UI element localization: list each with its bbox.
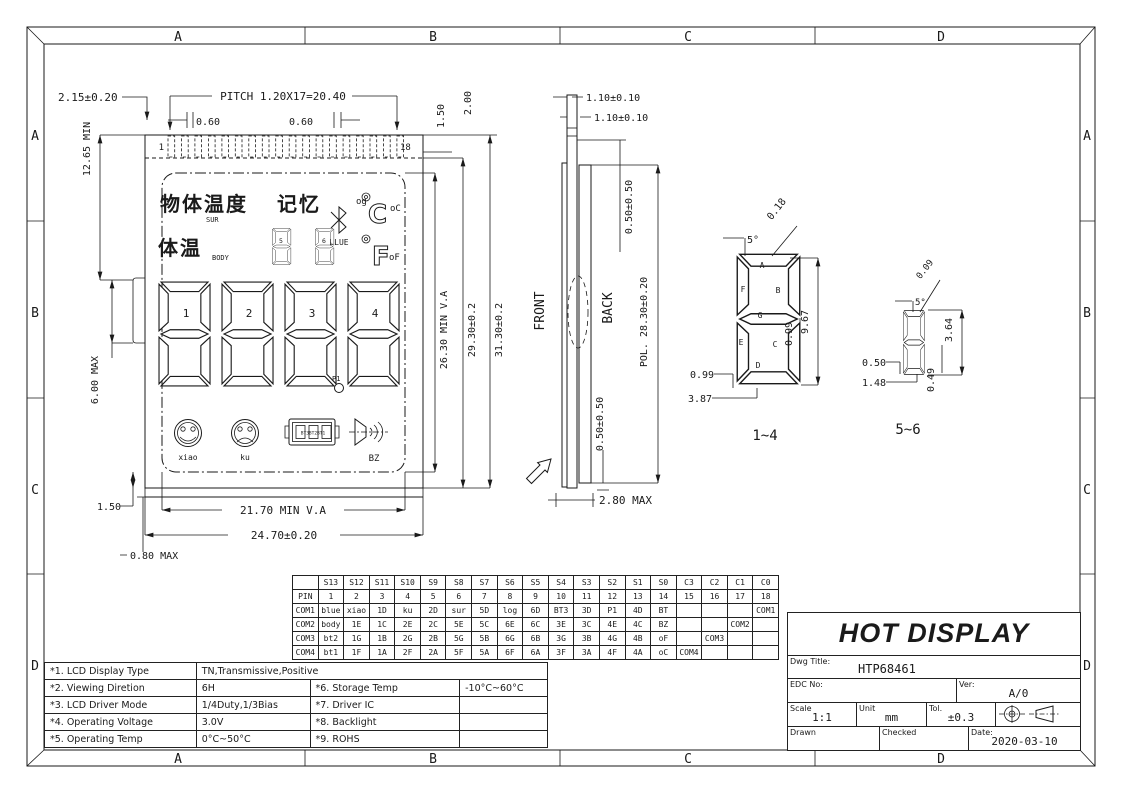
dim-0-50-seg: 0.50 (862, 358, 886, 369)
table-cell: BT3 (548, 604, 574, 618)
table-cell: S8 (446, 576, 472, 590)
table-cell: COM3 (293, 632, 319, 646)
table-cell: S9 (420, 576, 446, 590)
seg-b-label: B (776, 286, 781, 295)
zone-label-left-b: B (31, 306, 39, 321)
table-cell: *1. LCD Display Type (45, 663, 197, 680)
table-cell: ku (395, 604, 421, 618)
table-cell: 17 (727, 590, 753, 604)
table-cell (727, 604, 753, 618)
pin-strip (168, 136, 404, 157)
table-cell: bt1 (318, 646, 344, 660)
digit-4 (348, 282, 399, 386)
pin-assignment-table: S13S12S11S10S9S8S7S6S5S4S3S2S1S0C3C2C1C0… (292, 575, 779, 660)
table-cell: C1 (727, 576, 753, 590)
segment-detail-5-6: 0.09 5° 3.64 0.49 0.50 1.48 5~6 (862, 258, 962, 438)
table-cell: oF (651, 632, 677, 646)
celsius-icon: C oC (362, 193, 401, 230)
seg-g-label: G (758, 311, 763, 320)
zone-label-right-c: C (1083, 483, 1091, 498)
table-cell: C2 (702, 576, 728, 590)
table-cell: S5 (523, 576, 549, 590)
table-cell: S2 (599, 576, 625, 590)
table-cell: 3B (574, 632, 600, 646)
small-digit-6 (315, 228, 334, 264)
table-cell (702, 618, 728, 632)
dim-5deg-2: 5° (915, 298, 926, 308)
table-cell: 5F (446, 646, 472, 660)
sad-icon (232, 420, 259, 447)
table-cell: 1 (318, 590, 344, 604)
front-polarizer (562, 163, 567, 487)
zone-label-top-c: C (684, 30, 692, 45)
surface-temp-text: 物体温度 (160, 192, 248, 216)
table-cell: bt2 (318, 632, 344, 646)
table-cell: 3D (574, 604, 600, 618)
table-cell: sur (446, 604, 472, 618)
table-cell: COM3 (702, 632, 728, 646)
bluetooth-icon (331, 207, 346, 233)
table-cell: 0°C~50°C (196, 731, 310, 748)
table-cell: COM1 (293, 604, 319, 618)
projection-symbol (996, 703, 1076, 725)
digit-2 (222, 282, 273, 386)
table-cell: S3 (574, 576, 600, 590)
checked-label: Checked (882, 728, 916, 737)
table-cell: 2D (420, 604, 446, 618)
digit-4-label: 4 (372, 307, 379, 320)
dim-1-48: 1.48 (862, 378, 886, 389)
dim-2-80: 2.80 MAX (599, 494, 652, 507)
dim-1-50-top: 1.50 (436, 104, 447, 128)
table-cell: *8. Backlight (310, 714, 460, 731)
table-cell: 2E (395, 618, 421, 632)
table-cell: 16 (702, 590, 728, 604)
table-cell: BZ (651, 618, 677, 632)
front-view: 1 18 (133, 135, 423, 497)
dim-9-67: 9.67 (800, 310, 811, 334)
company-name: HOT DISPLAY (788, 613, 1080, 653)
dim-pitch: PITCH 1.20X17=20.40 (220, 90, 346, 103)
zone-label-top-d: D (937, 30, 945, 45)
table-cell: oC (651, 646, 677, 660)
table-cell: 1A (369, 646, 395, 660)
front-label: FRONT (533, 291, 548, 330)
dwg-title-label: Dwg Title: (790, 657, 830, 666)
table-cell: 1F (344, 646, 370, 660)
table-cell: S1 (625, 576, 651, 590)
battery-icon: BT3BT2BT1 (285, 419, 339, 445)
table-cell: 3F (548, 646, 574, 660)
table-cell: 4B (625, 632, 651, 646)
small-digit-5-label: 5 (279, 237, 283, 245)
table-cell: 5G (446, 632, 472, 646)
table-cell: 6A (523, 646, 549, 660)
table-cell: S13 (318, 576, 344, 590)
dim-0-49: 0.49 (926, 368, 937, 392)
dim-2-00: 2.00 (463, 91, 474, 115)
table-cell: 3A (574, 646, 600, 660)
table-cell: 8 (497, 590, 523, 604)
fahrenheit-glyph: F (372, 242, 390, 272)
back-label: BACK (601, 292, 616, 323)
unit-value: mm (857, 711, 926, 724)
zone-label-left-a: A (31, 129, 39, 144)
table-cell: *9. ROHS (310, 731, 460, 748)
lcd-content: 物体温度 SUR 记忆 og BLUE C oC 体温 BODY 5 6 F o… (158, 192, 401, 464)
zone-label-right-a: A (1083, 129, 1091, 144)
dim-21-70: 21.70 MIN V.A (240, 504, 326, 517)
table-cell: BT (651, 604, 677, 618)
connector-tab (133, 278, 145, 343)
dim-2-15: 2.15±0.20 (58, 91, 118, 104)
table-cell (676, 618, 702, 632)
digit-2-label: 2 (246, 307, 253, 320)
table-cell: 15 (676, 590, 702, 604)
dim-pol-28-30: POL. 28.30±0.20 (639, 277, 650, 367)
zone-label-bottom-d: D (937, 752, 945, 767)
table-cell: -10°C~60°C (460, 680, 548, 697)
zone-label-left-d: D (31, 659, 39, 674)
table-cell: 2 (344, 590, 370, 604)
table-cell: 14 (651, 590, 677, 604)
table-cell (460, 731, 548, 748)
table-cell: 3 (369, 590, 395, 604)
table-cell: 4E (599, 618, 625, 632)
table-cell: log (497, 604, 523, 618)
back-polarizer (579, 165, 591, 483)
smile-label: xiao (178, 453, 197, 462)
dim-1-10-a: 1.10±0.10 (586, 93, 640, 104)
table-cell: 4G (599, 632, 625, 646)
decimal-point-segment (335, 384, 344, 393)
table-cell (727, 646, 753, 660)
table-cell: 4C (625, 618, 651, 632)
table-cell: *6. Storage Temp (310, 680, 460, 697)
detail-1-title: 1~4 (752, 428, 777, 444)
view-direction-arrow (527, 459, 552, 484)
zone-label-right-b: B (1083, 306, 1091, 321)
dim-0-18: 0.18 (765, 197, 789, 223)
table-cell: COM4 (293, 646, 319, 660)
table-cell: S12 (344, 576, 370, 590)
table-cell: *3. LCD Driver Mode (45, 697, 197, 714)
dim-0-60-left: 0.60 (196, 117, 220, 128)
zone-label-right-d: D (1083, 659, 1091, 674)
body-label: BODY (212, 254, 230, 262)
table-cell: 2G (395, 632, 421, 646)
zone-label-bottom-c: C (684, 752, 692, 767)
pin-number-first: 1 (159, 143, 164, 153)
body-temp-text: 体温 (158, 236, 202, 260)
table-cell: 13 (625, 590, 651, 604)
side-view: FRONT BACK 1.10±0.10 1.10±0.10 0.50±0.50… (527, 93, 659, 507)
dim-31-30: 31.30±0.2 (494, 303, 505, 357)
zone-label-top-b: B (429, 30, 437, 45)
table-cell: 10 (548, 590, 574, 604)
dim-1-50-bottom: 1.50 (97, 502, 121, 513)
table-cell: 3.0V (196, 714, 310, 731)
dim-0-50-bottom: 0.50±0.50 (595, 397, 606, 451)
zone-label-bottom-a: A (174, 752, 182, 767)
table-cell: COM1 (753, 604, 779, 618)
seal (567, 128, 577, 136)
table-cell: 2B (420, 632, 446, 646)
zone-label-bottom-b: B (429, 752, 437, 767)
table-cell: 5C (472, 618, 498, 632)
table-cell (676, 632, 702, 646)
table-cell: 2A (420, 646, 446, 660)
digit-3 (285, 282, 336, 386)
table-cell: 6E (497, 618, 523, 632)
table-cell: C3 (676, 576, 702, 590)
seg-e-label: E (739, 338, 744, 347)
table-cell: 2F (395, 646, 421, 660)
table-cell: PIN (293, 590, 319, 604)
table-cell: 4F (599, 646, 625, 660)
table-cell: 6D (523, 604, 549, 618)
table-cell: *7. Driver IC (310, 697, 460, 714)
seg-d-label: D (756, 361, 761, 370)
table-cell: 5B (472, 632, 498, 646)
title-block: HOT DISPLAY Dwg Title: HTP68461 EDC No: … (787, 612, 1081, 751)
dim-0-99-bottom: 0.99 (690, 370, 714, 381)
table-cell: COM2 (727, 618, 753, 632)
dim-6-00: 6.00 MAX (90, 356, 101, 404)
table-cell: blue (318, 604, 344, 618)
small-digit-5 (272, 228, 291, 264)
table-cell: 4A (625, 646, 651, 660)
section-ellipse (568, 276, 588, 348)
dim-0-80: 0.80 MAX (130, 551, 178, 562)
dwg-title-value: HTP68461 (858, 662, 916, 676)
digit-3-label: 3 (309, 307, 316, 320)
table-cell (753, 646, 779, 660)
table-cell: C0 (753, 576, 779, 590)
table-cell: S7 (472, 576, 498, 590)
table-cell: S4 (548, 576, 574, 590)
dim-0-60-right: 0.60 (289, 117, 313, 128)
table-cell: 6G (497, 632, 523, 646)
dim-0-99-inner: 0.99 (784, 322, 795, 346)
table-cell: 6C (523, 618, 549, 632)
table-cell: 5 (420, 590, 446, 604)
table-cell: 3E (548, 618, 574, 632)
spec-table: *1. LCD Display TypeTN,Transmissive,Posi… (44, 662, 548, 748)
dim-3-87: 3.87 (688, 394, 712, 405)
table-cell: *5. Operating Temp (45, 731, 197, 748)
table-cell: 6H (196, 680, 310, 697)
scale-value: 1:1 (788, 711, 856, 724)
table-cell: TN,Transmissive,Positive (196, 663, 547, 680)
table-cell: COM2 (293, 618, 319, 632)
dim-12-65: 12.65 MIN (82, 122, 93, 176)
table-cell (460, 697, 548, 714)
sad-label: ku (240, 453, 250, 462)
dim-0-09: 0.09 (915, 258, 936, 281)
table-cell: S0 (651, 576, 677, 590)
table-cell: 12 (599, 590, 625, 604)
oc-label: oC (390, 204, 401, 214)
seg-a-label: A (760, 261, 765, 270)
glass-stack (567, 95, 577, 488)
sur-label: SUR (206, 216, 219, 224)
seg-c-label: C (773, 340, 778, 349)
table-cell: 1E (344, 618, 370, 632)
table-cell: 4D (625, 604, 651, 618)
table-cell: 1C (369, 618, 395, 632)
table-cell (753, 618, 779, 632)
table-cell: P1 (599, 604, 625, 618)
front-view-dimensions: 2.15±0.20 PITCH 1.20X17=20.40 0.60 0.60 … (58, 90, 505, 562)
table-cell: 1D (369, 604, 395, 618)
battery-cell-labels: BT3BT2BT1 (301, 431, 326, 437)
p1-label: P1 (332, 375, 340, 383)
memory-text: 记忆 (277, 192, 321, 216)
table-cell (702, 604, 728, 618)
table-cell: 3C (574, 618, 600, 632)
table-cell: 6 (446, 590, 472, 604)
table-cell: 18 (753, 590, 779, 604)
dim-5deg-1: 5° (747, 235, 759, 246)
table-cell: COM4 (676, 646, 702, 660)
table-cell: S6 (497, 576, 523, 590)
dim-1-10-b: 1.10±0.10 (594, 113, 648, 124)
table-cell (460, 714, 548, 731)
dim-26-30: 26.30 MIN V.A (439, 291, 450, 369)
fahrenheit-icon: F oF (362, 235, 400, 272)
table-cell: 7 (472, 590, 498, 604)
table-cell: 5E (446, 618, 472, 632)
table-cell (676, 604, 702, 618)
small-digit-6-label: 6 (322, 237, 326, 245)
version-value: A/0 (957, 687, 1080, 700)
table-cell: 2C (420, 618, 446, 632)
table-cell: 6B (523, 632, 549, 646)
table-cell: body (318, 618, 344, 632)
detail-2-title: 5~6 (895, 422, 920, 438)
zone-label-top-a: A (174, 30, 182, 45)
table-cell: S10 (395, 576, 421, 590)
table-cell: 6F (497, 646, 523, 660)
digit-1 (159, 282, 210, 386)
dim-24-70: 24.70±0.20 (251, 529, 317, 542)
celsius-glyph: C (368, 200, 387, 230)
table-cell (293, 576, 319, 590)
table-cell: 1B (369, 632, 395, 646)
table-cell: 5A (472, 646, 498, 660)
seg-f-label: F (741, 285, 746, 294)
table-cell: 9 (523, 590, 549, 604)
tolerance-value: ±0.3 (927, 711, 995, 724)
date-value: 2020-03-10 (969, 735, 1080, 748)
table-cell: 4 (395, 590, 421, 604)
table-cell: 5D (472, 604, 498, 618)
table-cell: 3G (548, 632, 574, 646)
table-cell: S11 (369, 576, 395, 590)
table-cell: *4. Operating Voltage (45, 714, 197, 731)
buzzer-icon (349, 419, 388, 445)
zone-label-left-c: C (31, 483, 39, 498)
dim-0-50-top: 0.50±0.50 (624, 180, 635, 234)
digit-1-label: 1 (183, 307, 190, 320)
drawn-label: Drawn (790, 728, 816, 737)
table-cell: 1G (344, 632, 370, 646)
table-cell (727, 632, 753, 646)
buzzer-label: BZ (369, 454, 380, 464)
pin-number-last: 18 (400, 143, 411, 153)
of-label: oF (389, 253, 400, 263)
drawing-sheet: A B C D A B C D A B C D A B C D 1 18 2.1… (0, 0, 1123, 794)
segment-detail-1-4: A B F G E C D 0.18 5° 9.67 0.99 0.99 3.8… (688, 197, 818, 444)
edc-no-label: EDC No: (790, 680, 823, 689)
smile-icon (175, 420, 202, 447)
dim-29-30: 29.30±0.2 (467, 303, 478, 357)
table-cell: xiao (344, 604, 370, 618)
table-cell: 1/4Duty,1/3Bias (196, 697, 310, 714)
table-cell (702, 646, 728, 660)
table-cell: 11 (574, 590, 600, 604)
table-cell: *2. Viewing Diretion (45, 680, 197, 697)
table-cell (753, 632, 779, 646)
dim-3-64: 3.64 (944, 318, 955, 342)
